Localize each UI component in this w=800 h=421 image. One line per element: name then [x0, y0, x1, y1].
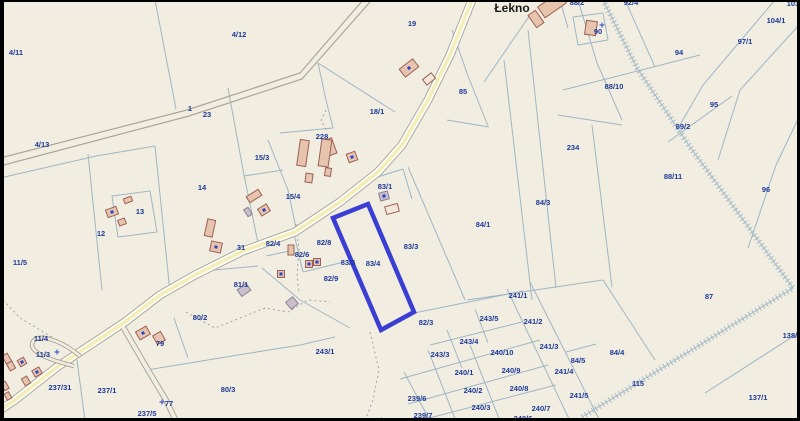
parcel-label-80-2: 80/2: [193, 313, 208, 322]
parcel-label-83-1: 83/1: [378, 182, 393, 191]
parcel-label-18-1: 18/1: [370, 107, 385, 116]
parcel-label-88-11: 88/11: [664, 172, 682, 181]
parcel-label-83-3: 83/3: [404, 242, 419, 251]
building-window-icon: [214, 245, 218, 249]
building: [278, 271, 285, 278]
parcel-label-4-13: 4/13: [35, 140, 50, 149]
parcel-label-12: 12: [97, 229, 105, 238]
parcel-label-15-4: 15/4: [286, 192, 301, 201]
parcel-label-4-12: 4/12: [232, 30, 247, 39]
parcel-label-15-3: 15/3: [255, 153, 270, 162]
parcel-label-241-5: 241/5: [570, 391, 589, 400]
parcel-label-240-2: 240/2: [464, 386, 483, 395]
parcel-label-11-3: 11/3: [36, 350, 50, 359]
parcel-label-240-3: 240/3: [472, 403, 491, 412]
parcel-label-243-5: 243/5: [480, 314, 499, 323]
building-window-icon: [308, 263, 311, 266]
parcel-label-137-1: 137/1: [749, 393, 768, 402]
building: [314, 259, 321, 266]
parcel-label-82-4: 82/4: [266, 239, 281, 248]
parcel-label-80-3: 80/3: [221, 385, 236, 394]
parcel-label-77: 77: [165, 399, 173, 408]
parcel-label-97-1: 97/1: [738, 37, 753, 46]
parcel-label-82-9: 82/9: [324, 274, 339, 283]
parcel-label-23: 23: [203, 110, 211, 119]
parcel-label-1: 1: [188, 104, 192, 113]
parcel-label-84-1: 84/1: [476, 220, 491, 229]
building: [379, 191, 390, 201]
parcel-label-87: 87: [705, 292, 713, 301]
building-window-icon: [316, 261, 319, 264]
parcel-label-79: 79: [156, 339, 164, 348]
parcel-label-88-10: 88/10: [605, 82, 624, 91]
parcel-label-240-9: 240/9: [502, 366, 521, 375]
parcel-label-81-1: 81/1: [234, 280, 249, 289]
parcel-label-237-31: 237/31: [49, 383, 72, 392]
parcel-label-83-4: 83/4: [366, 259, 381, 268]
parcel-label-85: 85: [459, 87, 467, 96]
parcel-label-11-5: 11/5: [13, 258, 27, 267]
parcel-label-240-7: 240/7: [532, 404, 551, 413]
building: [210, 241, 223, 253]
parcel-label-19: 19: [408, 19, 416, 28]
building-window-icon: [280, 273, 283, 276]
parcel-label-237-5: 237/5: [138, 409, 157, 418]
parcel-label-14: 14: [198, 183, 207, 192]
building: [306, 261, 313, 268]
parcel-label-239-6: 239/6: [408, 394, 427, 403]
building: [324, 168, 331, 177]
parcel-label-240-10: 240/10: [491, 348, 514, 357]
parcel-label-241-3: 241/3: [540, 342, 559, 351]
parcel-label-240-8: 240/8: [510, 384, 529, 393]
parcel-label-90: 90: [594, 27, 602, 36]
parcel-label-13: 13: [136, 207, 144, 216]
parcel-label-31: 31: [237, 243, 245, 252]
parcel-label-241-1: 241/1: [509, 291, 528, 300]
parcel-label-240-1: 240/1: [455, 368, 474, 377]
parcel-label-241-4: 241/4: [555, 367, 575, 376]
building: [288, 245, 294, 255]
cadastral-map-viewport[interactable]: 4/114/124/131231915/31415/4131211/522818…: [0, 0, 800, 421]
parcel-label-237-1: 237/1: [98, 386, 117, 395]
parcel-label-82-3: 82/3: [419, 318, 434, 327]
parcel-label-84-4: 84/4: [610, 348, 625, 357]
parcel-label-89-2: 89/2: [676, 122, 691, 131]
parcel-label-11-4: 11/4: [34, 334, 49, 343]
place-label: Łekno: [494, 1, 529, 15]
parcel-label-115: 115: [632, 379, 644, 388]
parcel-label-243-1: 243/1: [316, 347, 335, 356]
map-background: [0, 0, 800, 421]
parcel-label-234: 234: [567, 143, 580, 152]
parcel-label-241-2: 241/2: [524, 317, 543, 326]
parcel-label-83-5: 83/5: [341, 258, 356, 267]
parcel-label-243-3: 243/3: [431, 350, 450, 359]
parcel-label-94: 94: [675, 48, 684, 57]
parcel-label-243-4: 243/4: [460, 337, 480, 346]
parcel-label-82-6: 82/6: [295, 250, 310, 259]
parcel-label-228: 228: [316, 132, 329, 141]
parcel-label-104-1: 104/1: [767, 16, 786, 25]
parcel-label-4-11: 4/11: [9, 48, 23, 57]
parcel-label-96: 96: [762, 185, 770, 194]
parcel-label-95: 95: [710, 100, 718, 109]
parcel-label-82-8: 82/8: [317, 238, 332, 247]
cadastral-map[interactable]: 4/114/124/131231915/31415/4131211/522818…: [0, 0, 800, 421]
building: [305, 173, 313, 183]
parcel-label-84-5: 84/5: [571, 356, 586, 365]
parcel-label-84-3: 84/3: [536, 198, 551, 207]
